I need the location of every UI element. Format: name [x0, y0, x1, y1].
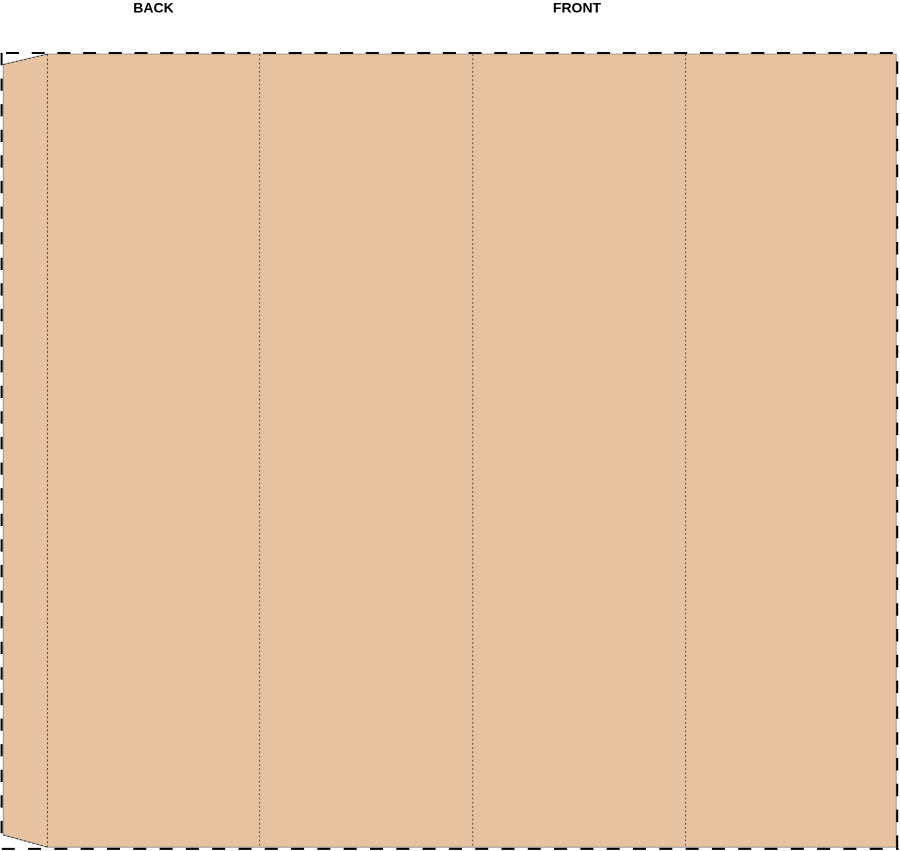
svg-text:FRONT: FRONT [553, 0, 602, 16]
svg-text:BACK: BACK [133, 0, 173, 16]
